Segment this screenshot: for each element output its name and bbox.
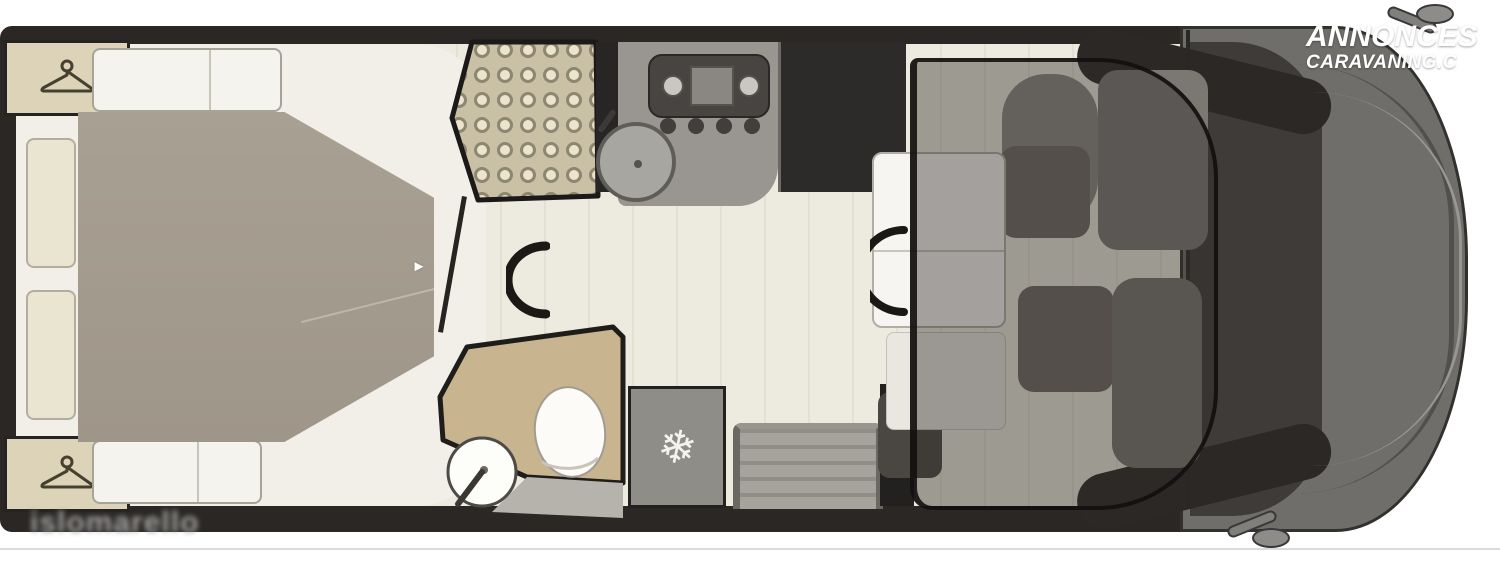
side-mirror-bottom (1252, 528, 1290, 548)
bed-extension-arrow-icon: ► (406, 254, 432, 280)
bed-fold-line (301, 285, 447, 323)
headboard-cushion-bottom (26, 290, 76, 420)
snowflake-icon: ❄ (653, 417, 702, 478)
dealer-logo-watermark: islomarello (30, 506, 199, 540)
refrigerator: ❄ (628, 386, 726, 508)
hob-knob-right (738, 75, 760, 97)
bathroom (432, 322, 632, 522)
hob-stove (648, 54, 770, 118)
hob-control (744, 118, 760, 134)
sink-drain (634, 160, 642, 168)
hob-grate (690, 66, 734, 106)
shower-tray (452, 42, 598, 200)
cabinet-divider (197, 442, 199, 502)
drop-down-bed-overlay (910, 58, 1218, 510)
page-bottom-rule (0, 548, 1500, 550)
kitchen-sink (596, 122, 676, 202)
hanger-icon (35, 58, 99, 98)
cabinet-divider (209, 50, 211, 110)
hob-knob-left (662, 75, 684, 97)
table-leg-arc (870, 220, 912, 322)
bathroom-door-arc (506, 238, 550, 322)
watermark-line1: ANNONCES (1306, 22, 1478, 53)
shower-cubicle (448, 38, 602, 204)
hob-control (688, 118, 704, 134)
entrance-step (733, 423, 883, 509)
watermark: ANNONCES CARAVANING.C (1306, 22, 1478, 72)
headboard-cushion-top (26, 138, 76, 268)
bedside-cabinet-bottom (92, 440, 262, 504)
floorplan-canvas: ► ❄ (0, 0, 1500, 561)
watermark-line2: CARAVANING.C (1306, 53, 1478, 72)
hanger-icon (35, 454, 99, 494)
bedside-cabinet-top (92, 48, 282, 112)
hob-control (716, 118, 732, 134)
